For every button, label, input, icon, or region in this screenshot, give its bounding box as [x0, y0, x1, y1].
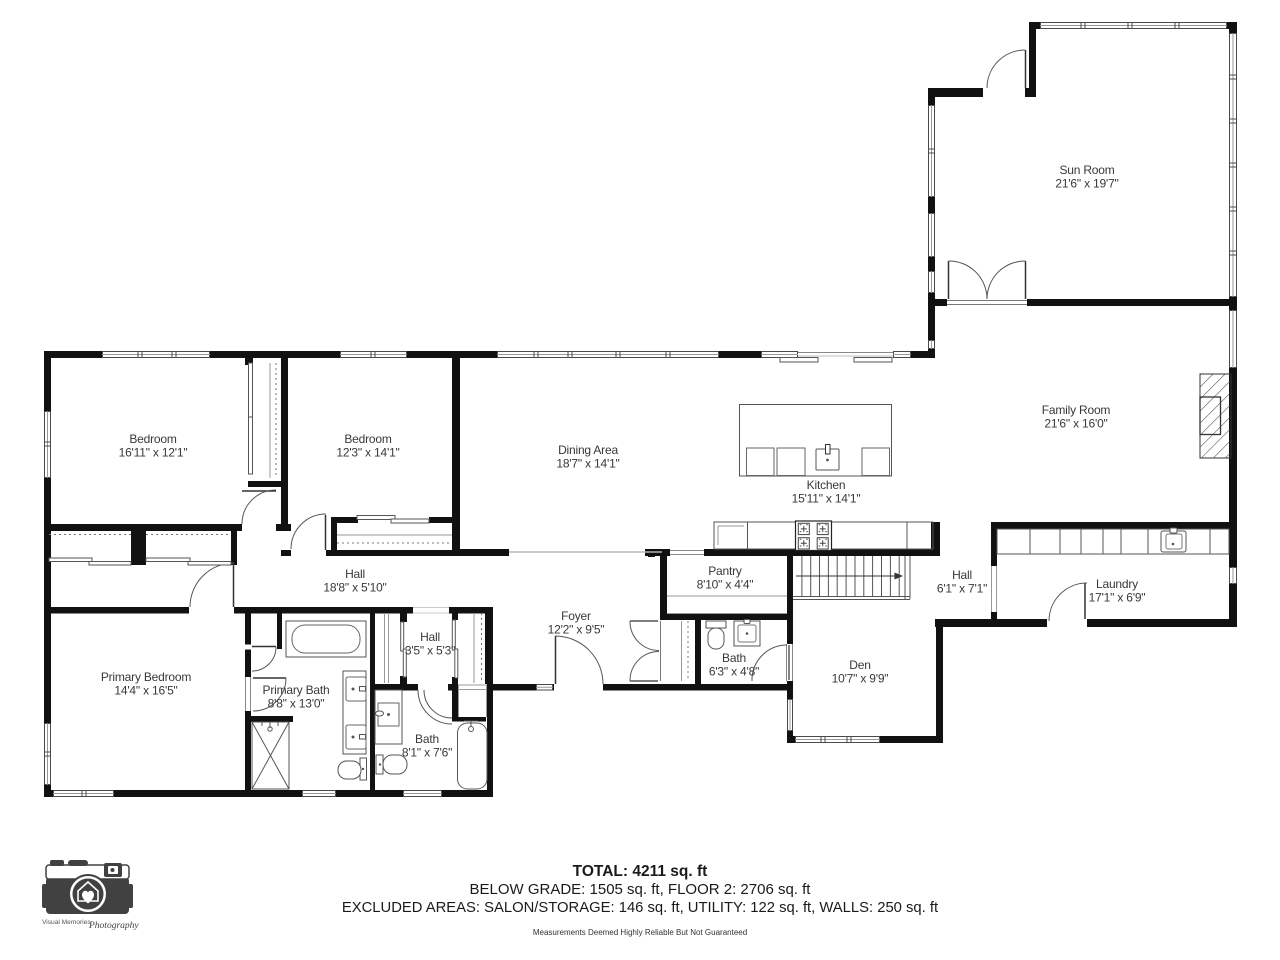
svg-text:14'4" x 16'5": 14'4" x 16'5": [114, 684, 177, 698]
svg-text:21'6" x 19'7": 21'6" x 19'7": [1055, 177, 1118, 191]
svg-text:8'1" x 7'6": 8'1" x 7'6": [402, 746, 452, 760]
svg-text:Den: Den: [849, 658, 870, 672]
svg-text:EXCLUDED AREAS: SALON/STORAGE:: EXCLUDED AREAS: SALON/STORAGE: 146 sq. f…: [342, 900, 938, 916]
svg-text:10'7" x 9'9": 10'7" x 9'9": [832, 672, 889, 686]
svg-text:21'6" x 16'0": 21'6" x 16'0": [1044, 417, 1107, 431]
svg-text:Primary Bath: Primary Bath: [263, 683, 330, 697]
svg-text:12'3" x 14'1": 12'3" x 14'1": [336, 446, 399, 460]
svg-text:17'1" x 6'9": 17'1" x 6'9": [1089, 591, 1146, 605]
svg-text:8'10" x 4'4": 8'10" x 4'4": [697, 578, 754, 592]
svg-text:Kitchen: Kitchen: [807, 478, 846, 492]
svg-text:Sun Room: Sun Room: [1059, 163, 1114, 177]
svg-text:16'11" x 12'1": 16'11" x 12'1": [119, 446, 188, 460]
svg-text:18'7" x 14'1": 18'7" x 14'1": [556, 457, 619, 471]
svg-text:Photography: Photography: [88, 921, 139, 931]
svg-text:12'2" x 9'5": 12'2" x 9'5": [548, 623, 605, 637]
svg-text:Bath: Bath: [722, 651, 746, 665]
svg-text:Foyer: Foyer: [561, 609, 591, 623]
svg-text:8'8" x 13'0": 8'8" x 13'0": [268, 697, 325, 711]
svg-text:BELOW GRADE: 1505 sq. ft, FLOO: BELOW GRADE: 1505 sq. ft, FLOOR 2: 2706 …: [470, 881, 812, 898]
svg-text:Bedroom: Bedroom: [344, 432, 391, 446]
svg-text:15'11" x 14'1": 15'11" x 14'1": [792, 492, 861, 506]
svg-text:Family Room: Family Room: [1042, 403, 1111, 417]
svg-text:Hall: Hall: [345, 567, 365, 581]
svg-text:Bath: Bath: [415, 732, 439, 746]
svg-text:Hall: Hall: [952, 568, 972, 582]
svg-text:Measurements Deemed Highly Rel: Measurements Deemed Highly Reliable But …: [533, 928, 747, 937]
svg-text:18'8" x 5'10": 18'8" x 5'10": [323, 581, 386, 595]
svg-text:6'3" x 4'8": 6'3" x 4'8": [709, 665, 759, 679]
svg-text:6'1" x 7'1": 6'1" x 7'1": [937, 582, 987, 596]
svg-text:3'5" x 5'3": 3'5" x 5'3": [405, 644, 455, 658]
svg-text:Hall: Hall: [420, 630, 440, 644]
svg-text:TOTAL: 4211 sq. ft: TOTAL: 4211 sq. ft: [573, 863, 708, 880]
svg-text:Bedroom: Bedroom: [129, 432, 176, 446]
svg-text:Laundry: Laundry: [1096, 577, 1138, 591]
svg-text:Visual Memories: Visual Memories: [42, 919, 91, 926]
svg-text:Dining Area: Dining Area: [558, 443, 618, 457]
svg-text:Primary Bedroom: Primary Bedroom: [101, 670, 192, 684]
svg-text:Pantry: Pantry: [708, 564, 742, 578]
